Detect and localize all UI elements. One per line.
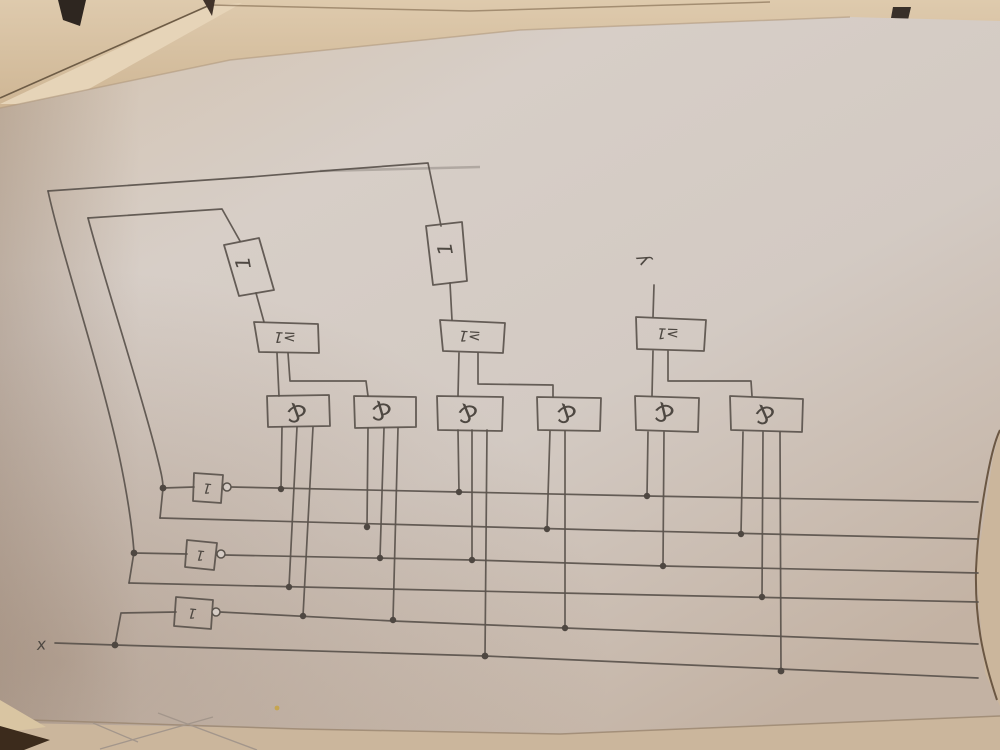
input-x-label: x — [35, 634, 47, 654]
inverter3-label: 1 — [187, 604, 197, 621]
inverter1-label: 1 — [202, 479, 212, 496]
inverter2-input-wire — [134, 553, 187, 554]
photo-of-schematic: 1 1 ≥1 ≥1 ≥1 & & & & & & 1 1 1 x y — [0, 0, 1000, 750]
paper-curl-shadow — [0, 17, 1000, 734]
or2-to-and3-wire — [458, 353, 459, 396]
or3-label: ≥1 — [656, 324, 679, 343]
inverter3-bubble — [212, 608, 220, 616]
or3-output-wire — [653, 285, 654, 317]
inverter1-bubble — [223, 483, 231, 491]
dark-gap-top-right — [891, 7, 911, 20]
or3-to-and5-wire — [652, 351, 653, 396]
or1-label: ≥1 — [273, 328, 296, 347]
inverter2-bubble — [217, 550, 225, 558]
schematic-canvas: 1 1 ≥1 ≥1 ≥1 & & & & & & 1 1 1 x y — [0, 0, 1000, 750]
inverter1-input-wire — [163, 487, 194, 488]
paper-stain — [275, 706, 280, 711]
inverter2-label: 1 — [195, 546, 205, 563]
or2-label: ≥1 — [458, 326, 481, 345]
